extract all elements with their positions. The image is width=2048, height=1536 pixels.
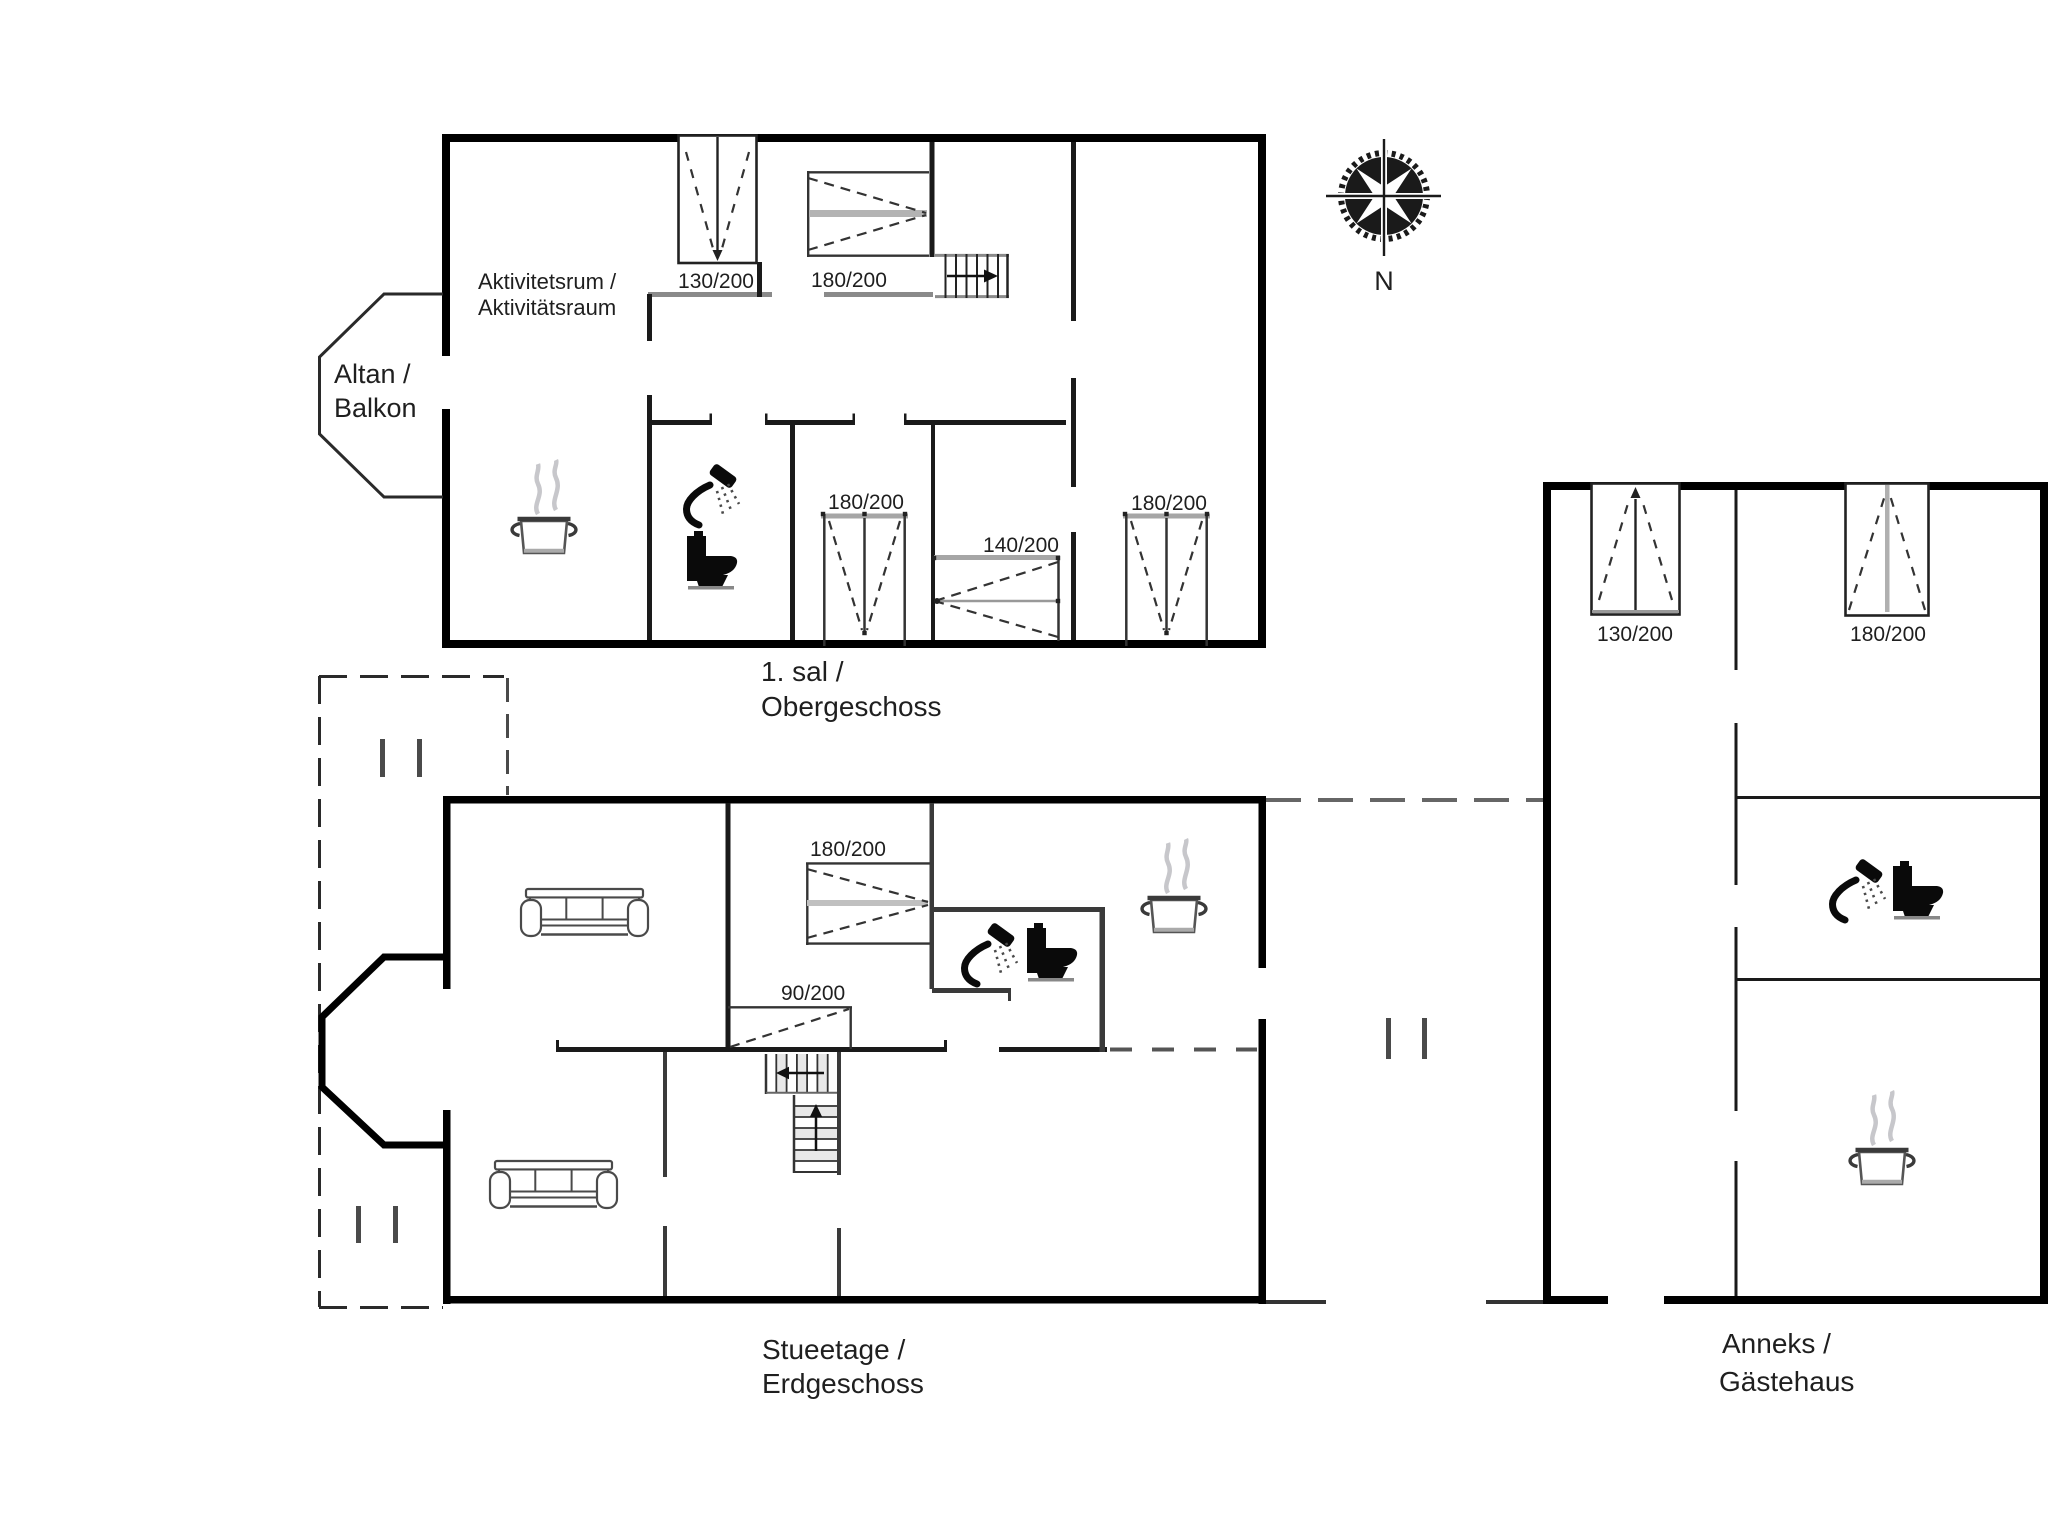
svg-text:Erdgeschoss: Erdgeschoss (762, 1368, 924, 1399)
svg-text:N: N (1374, 266, 1394, 296)
svg-text:Aktivitetsrum /: Aktivitetsrum / (478, 269, 617, 294)
svg-text:130/200: 130/200 (1597, 623, 1673, 646)
svg-text:Stueetage /: Stueetage / (762, 1334, 905, 1365)
svg-text:90/200: 90/200 (781, 982, 845, 1005)
svg-text:180/200: 180/200 (811, 269, 887, 292)
svg-text:180/200: 180/200 (810, 838, 886, 861)
svg-text:Anneks /: Anneks / (1722, 1328, 1831, 1359)
svg-text:Gästehaus: Gästehaus (1719, 1366, 1854, 1397)
svg-text:180/200: 180/200 (1850, 623, 1926, 646)
svg-text:Aktivitätsraum: Aktivitätsraum (478, 295, 616, 320)
svg-text:180/200: 180/200 (1131, 492, 1207, 515)
svg-text:140/200: 140/200 (983, 534, 1059, 557)
svg-text:130/200: 130/200 (678, 270, 754, 293)
svg-text:180/200: 180/200 (828, 491, 904, 514)
svg-text:Altan /: Altan / (334, 359, 411, 389)
svg-text:Balkon: Balkon (334, 393, 417, 423)
svg-text:1. sal /: 1. sal / (761, 656, 844, 687)
svg-text:Obergeschoss: Obergeschoss (761, 691, 942, 722)
